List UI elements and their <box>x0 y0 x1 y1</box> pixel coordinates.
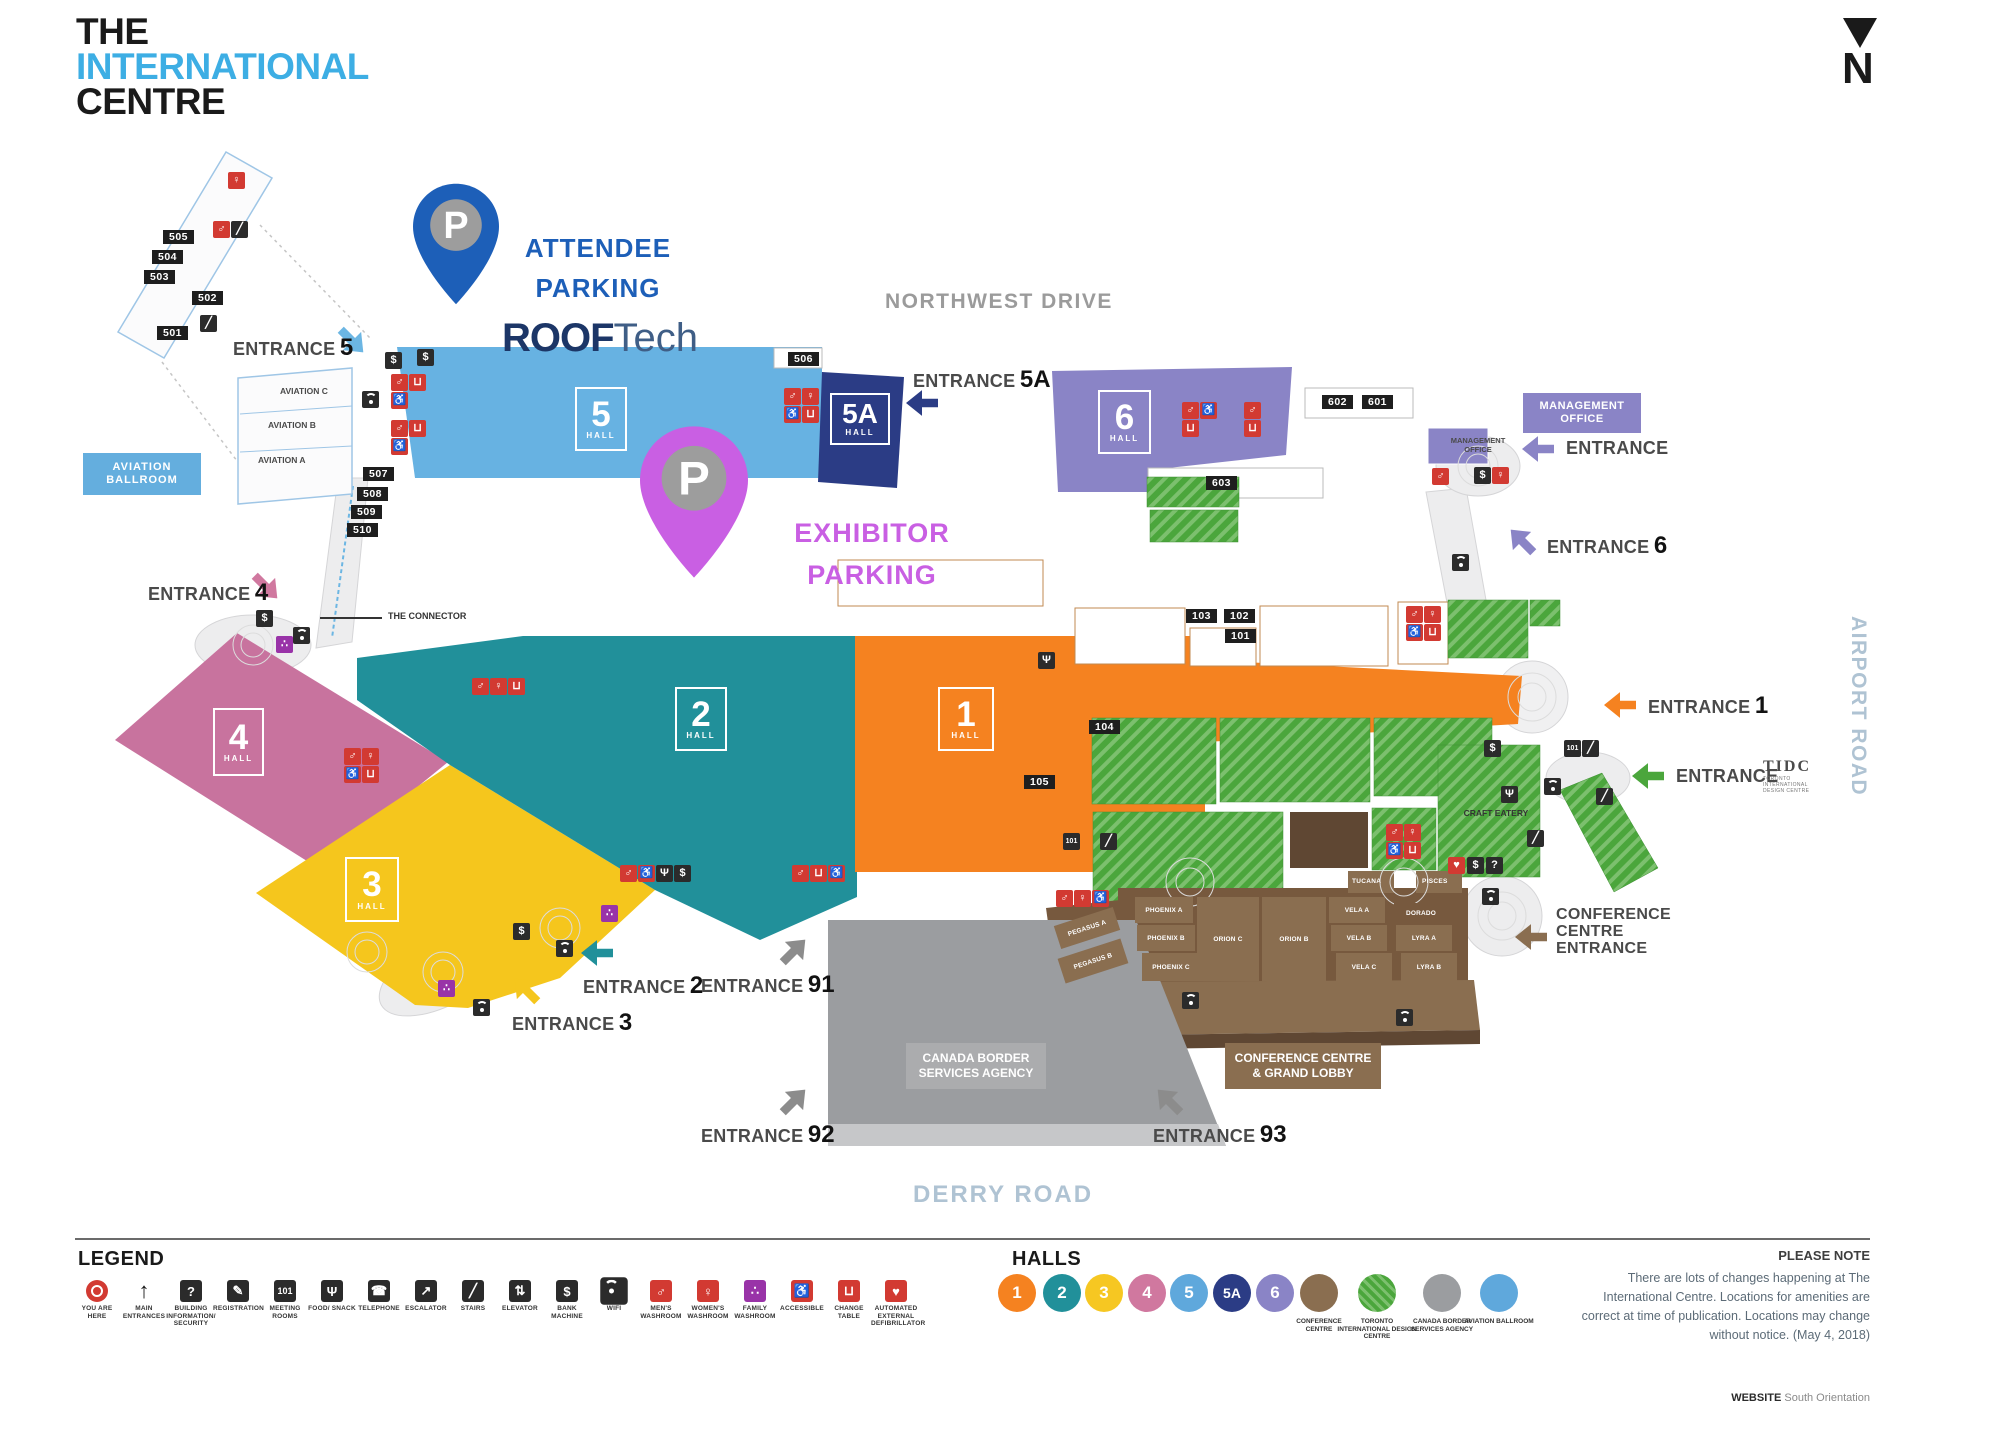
hall-3-swatch: 3 <box>1085 1274 1123 1312</box>
footer-divider <box>75 1238 1870 1240</box>
womens-washroom-icon: ♀ <box>1404 824 1421 841</box>
attendee-word: ATTENDEE <box>518 228 678 268</box>
legend-item: ♥AUTOMATED EXTERNAL DEFIBRILLATOR <box>871 1280 921 1328</box>
defibrillator-icon: ♥ <box>1448 857 1465 874</box>
aviation-b-label: AVIATION B <box>268 420 316 430</box>
womens-washroom-icon: ♀ <box>802 388 819 405</box>
hall-3-label: 3HALL <box>345 857 399 922</box>
legend-item: ♀WOMEN'S WASHROOM <box>683 1280 733 1320</box>
bank-machine-icon: $ <box>1467 857 1484 874</box>
aviation-a-label: AVIATION A <box>258 455 306 465</box>
room-503: 503 <box>144 270 175 284</box>
room-509: 509 <box>351 505 382 519</box>
stairs-icon: ╱ <box>1527 830 1544 847</box>
logo-line-centre: CENTRE <box>76 84 369 119</box>
management-entrance-label: ENTRANCE <box>1566 438 1668 459</box>
womens-washroom-icon: ♀ <box>362 748 379 765</box>
conference-centre-swatch <box>1300 1274 1338 1312</box>
change-table-icon: ⊔ <box>1424 624 1441 641</box>
aviation-ballroom-label: AVIATIONBALLROOM <box>83 453 201 495</box>
venue-logo: THE INTERNATIONAL CENTRE <box>76 14 369 119</box>
exhibitor-parking-pin: P <box>640 426 748 583</box>
room-504: 504 <box>152 250 183 264</box>
food-snack-icon: Ψ <box>321 1280 343 1302</box>
accessible-icon: ♿ <box>391 438 408 455</box>
hall-4-swatch: 4 <box>1128 1274 1166 1312</box>
meeting-rooms-icon: 101 <box>1063 833 1080 850</box>
hall-5a-swatch: 5A <box>1213 1274 1251 1312</box>
change-table-icon: ⊔ <box>409 374 426 391</box>
wifi-icon <box>1544 778 1561 795</box>
hall-5a-label: 5AHALL <box>830 393 890 445</box>
attendee-parking-word: PARKING <box>518 268 678 308</box>
stairs-icon: ╱ <box>200 315 217 332</box>
bank-machine-icon: $ <box>1474 467 1491 484</box>
hall-2-swatch: 2 <box>1043 1274 1081 1312</box>
room-603: 603 <box>1206 476 1237 490</box>
family-washroom-icon: ∴ <box>438 980 455 997</box>
stairs-icon: ╱ <box>1596 788 1613 805</box>
accessible-icon: ♿ <box>784 406 801 423</box>
logo-line-international: INTERNATIONAL <box>76 49 369 84</box>
cbsa-label: CANADA BORDERSERVICES AGENCY <box>906 1043 1046 1089</box>
room-phoenix-c: PHOENIX C <box>1142 953 1200 981</box>
room-tucana: TUCANA <box>1352 878 1381 885</box>
halls-legend-title: HALLS <box>1012 1248 1081 1271</box>
accessible-icon: ♿ <box>1092 890 1109 907</box>
craft-eatery-label: CRAFT EATERY <box>1446 808 1546 818</box>
entrance-3-label: ENTRANCE 3 <box>512 1009 632 1037</box>
stairs-icon: ╱ <box>231 221 248 238</box>
rooftech-roof: ROOF <box>502 316 614 360</box>
food-icon: Ψ <box>1038 652 1055 669</box>
accessible-icon: ♿ <box>391 392 408 409</box>
entrance-5a-label: ENTRANCE 5A <box>913 366 1051 394</box>
bank-machine-icon: $ <box>674 865 691 882</box>
change-table-icon: ⊔ <box>802 406 819 423</box>
mens-washroom-icon: ♂ <box>1182 402 1199 419</box>
hall-2-label: 2HALL <box>675 687 727 751</box>
entrance-93-label: ENTRANCE 93 <box>1153 1121 1287 1149</box>
mens-washroom-icon: ♂ <box>344 748 361 765</box>
tidc-swatch <box>1358 1274 1396 1312</box>
room-vela-c: VELA C <box>1336 953 1392 981</box>
mens-washroom-icon: ♂ <box>650 1280 672 1302</box>
entrance-1-arrow-icon <box>1604 692 1636 718</box>
cbsa-swatch <box>1423 1274 1461 1312</box>
mens-washroom-icon: ♂ <box>391 374 408 391</box>
room-dorado: DORADO <box>1394 903 1448 923</box>
entrance-6-label: ENTRANCE 6 <box>1547 532 1667 560</box>
please-note-title: PLEASE NOTE <box>1580 1248 1870 1263</box>
main-entrances-icon: ↑ <box>133 1280 155 1302</box>
road-derry-road: DERRY ROAD <box>913 1181 1093 1209</box>
legend-item: ⊔CHANGE TABLE <box>824 1280 874 1320</box>
bank-machine-icon: $ <box>417 349 434 366</box>
room-104: 104 <box>1089 720 1120 734</box>
telephone-icon: ☎ <box>368 1280 390 1302</box>
legend-item: WIFI <box>589 1280 639 1313</box>
wifi-icon <box>556 940 573 957</box>
family-washroom-icon: ∴ <box>601 905 618 922</box>
legend-item: ♂MEN'S WASHROOM <box>636 1280 686 1320</box>
mens-washroom-icon: ♂ <box>391 420 408 437</box>
room-vela-b: VELA B <box>1331 925 1387 951</box>
website-orientation: WEBSITE South Orientation <box>1580 1392 1870 1404</box>
womens-washroom-icon: ♀ <box>1492 467 1509 484</box>
defibrillator-icon: ♥ <box>885 1280 907 1302</box>
mens-washroom-icon: ♂ <box>1432 468 1449 485</box>
connector-label: THE CONNECTOR <box>388 611 466 621</box>
exhibitor-parking-label: EXHIBITOR PARKING <box>772 512 972 596</box>
room-phoenix-b: PHOENIX B <box>1137 925 1195 951</box>
mens-washroom-icon: ♂ <box>1056 890 1073 907</box>
mens-washroom-icon: ♂ <box>213 221 230 238</box>
parking-pin-icon: P <box>640 426 748 578</box>
accessible-icon: ♿ <box>638 865 655 882</box>
womens-washroom-icon: ♀ <box>228 172 245 189</box>
meeting-rooms-icon: 101 <box>274 1280 296 1302</box>
rooftech-tech: Tech <box>614 316 699 360</box>
womens-washroom-icon: ♀ <box>697 1280 719 1302</box>
legend-title: LEGEND <box>78 1248 164 1271</box>
hall-4-label: 4HALL <box>213 708 264 776</box>
room-501: 501 <box>157 326 188 340</box>
wifi-icon <box>293 627 310 644</box>
mens-washroom-icon: ♂ <box>620 865 637 882</box>
bank-machine-icon: $ <box>256 610 273 627</box>
conference-centre-label: CONFERENCE CENTRE& GRAND LOBBY <box>1225 1043 1381 1089</box>
escalator-icon: ↗ <box>415 1280 437 1302</box>
aviation-c-label: AVIATION C <box>280 386 328 396</box>
tidc-logo: TIDC TORONTO INTERNATIONAL DESIGN CENTRE <box>1763 758 1811 794</box>
entrance-91-label: ENTRANCE 91 <box>701 971 835 999</box>
please-note: PLEASE NOTE There are lots of changes ha… <box>1580 1248 1870 1345</box>
accessible-icon: ♿ <box>1406 624 1423 641</box>
exhibitor-parking-word: PARKING <box>772 554 972 596</box>
hall-1-label: 1HALL <box>938 687 994 751</box>
tidc-entrance-arrow-icon <box>1632 763 1664 789</box>
womens-washroom-icon: ♀ <box>490 678 507 695</box>
legend-item: ΨFOOD/ SNACK <box>307 1280 357 1313</box>
change-table-icon: ⊔ <box>1404 842 1421 859</box>
svg-text:P: P <box>443 205 468 247</box>
room-102: 102 <box>1224 609 1255 623</box>
aviation-ballroom-swatch <box>1480 1274 1518 1312</box>
building-information-icon: ? <box>180 1280 202 1302</box>
meeting-rooms-icon: 101 <box>1564 740 1581 757</box>
attendee-parking-pin: P <box>413 183 499 310</box>
entrance-4-label: ENTRANCE 4 <box>148 579 268 607</box>
hall-5-swatch: 5 <box>1170 1274 1208 1312</box>
road-northwest-drive: NORTHWEST DRIVE <box>885 290 1113 314</box>
legend-item: $BANK MACHINE <box>542 1280 592 1320</box>
north-label: N <box>1842 44 1874 94</box>
legend-item: ⇅ELEVATOR <box>495 1280 545 1313</box>
change-table-icon: ⊔ <box>1182 420 1199 437</box>
bank-machine-icon: $ <box>385 352 402 369</box>
change-table-icon: ⊔ <box>838 1280 860 1302</box>
information-icon: ? <box>1486 857 1503 874</box>
room-502: 502 <box>192 291 223 305</box>
room-phoenix-a: PHOENIX A <box>1135 897 1193 923</box>
mens-washroom-icon: ♂ <box>1386 824 1403 841</box>
venue-map-page: THE INTERNATIONAL CENTRE N NORTHWEST DRI… <box>0 0 2000 1429</box>
room-105: 105 <box>1024 775 1055 789</box>
food-icon: Ψ <box>1501 786 1518 803</box>
room-101: 101 <box>1225 629 1256 643</box>
womens-washroom-icon: ♀ <box>1424 606 1441 623</box>
legend-item: ✎REGISTRATION <box>213 1280 263 1313</box>
change-table-icon: ⊔ <box>1244 420 1261 437</box>
wifi-icon <box>362 391 379 408</box>
legend-item: ?BUILDING INFORMATION/ SECURITY <box>166 1280 216 1328</box>
legend-item: YOU ARE HERE <box>72 1280 122 1320</box>
svg-text:P: P <box>678 452 710 505</box>
aviation-ballroom-swatch-label: AVIATION BALLROOM <box>1464 1318 1534 1326</box>
room-pisces: PISCES <box>1422 878 1448 885</box>
room-vela-a: VELA A <box>1329 897 1385 923</box>
wifi-icon <box>1182 992 1199 1009</box>
room-orion-b: ORION B <box>1262 897 1326 981</box>
accessible-icon: ♿ <box>1200 402 1217 419</box>
you-are-here-icon <box>86 1280 108 1302</box>
connector-pointer-line <box>320 617 382 619</box>
family-washroom-icon: ∴ <box>276 636 293 653</box>
accessible-icon: ♿ <box>344 766 361 783</box>
family-washroom-icon: ∴ <box>744 1280 766 1302</box>
mens-washroom-icon: ♂ <box>784 388 801 405</box>
wifi-icon <box>1482 888 1499 905</box>
change-table-icon: ⊔ <box>362 766 379 783</box>
room-510: 510 <box>347 523 378 537</box>
wifi-icon <box>473 999 490 1016</box>
legend-item: 101MEETING ROOMS <box>260 1280 310 1320</box>
room-507: 507 <box>363 467 394 481</box>
room-103: 103 <box>1186 609 1217 623</box>
room-601: 601 <box>1362 395 1393 409</box>
mens-washroom-icon: ♂ <box>1244 402 1261 419</box>
bank-machine-icon: $ <box>1484 740 1501 757</box>
accessible-icon: ♿ <box>791 1280 813 1302</box>
hall-6-label: 6HALL <box>1098 390 1151 454</box>
room-orion-c: ORION C <box>1197 897 1259 981</box>
elevator-icon: ⇅ <box>509 1280 531 1302</box>
stairs-icon: ╱ <box>1100 833 1117 850</box>
change-table-icon: ⊔ <box>409 420 426 437</box>
attendee-parking-label: ATTENDEE PARKING <box>518 228 678 308</box>
accessible-icon: ♿ <box>1386 842 1403 859</box>
legend-item: ♿ACCESSIBLE <box>777 1280 827 1313</box>
legend-item: ∴FAMILY WASHROOM <box>730 1280 780 1320</box>
room-505: 505 <box>163 230 194 244</box>
change-table-icon: ⊔ <box>508 678 525 695</box>
room-lyra-b: LYRA B <box>1401 953 1457 981</box>
please-note-body: There are lots of changes happening at T… <box>1580 1269 1870 1345</box>
legend-item: ↗ESCALATOR <box>401 1280 451 1313</box>
stairs-icon: ╱ <box>462 1280 484 1302</box>
conference-entrance-label: CONFERENCE CENTRE ENTRANCE <box>1556 906 1671 957</box>
hall-1-swatch: 1 <box>998 1274 1036 1312</box>
logo-line-the: THE <box>76 14 369 49</box>
room-508: 508 <box>357 487 388 501</box>
road-airport-road: AIRPORT ROAD <box>1846 616 1870 796</box>
entrance-5-label: ENTRANCE 5 <box>233 334 353 362</box>
room-506: 506 <box>788 352 819 366</box>
conference-entrance-arrow-icon <box>1515 924 1547 950</box>
legend-item: ↑MAIN ENTRANCES <box>119 1280 169 1320</box>
room-602: 602 <box>1322 395 1353 409</box>
management-office-legend-label: MANAGEMENTOFFICE <box>1523 393 1641 433</box>
rooftech-logo: ROOFTech <box>502 316 698 361</box>
entrance-92-label: ENTRANCE 92 <box>701 1121 835 1149</box>
management-entrance-arrow-icon <box>1522 436 1554 462</box>
wifi-icon <box>1452 554 1469 571</box>
room-lyra-a: LYRA A <box>1396 925 1452 951</box>
entrance-1-label: ENTRANCE 1 <box>1648 692 1768 720</box>
mens-washroom-icon: ♂ <box>792 865 809 882</box>
bank-machine-icon: $ <box>556 1280 578 1302</box>
mens-washroom-icon: ♂ <box>1406 606 1423 623</box>
parking-pin-icon: P <box>413 183 499 305</box>
exhibitor-word: EXHIBITOR <box>772 512 972 554</box>
management-office-map-label: MANAGEMENT OFFICE <box>1440 437 1516 454</box>
hall-6-swatch: 6 <box>1256 1274 1294 1312</box>
womens-washroom-icon: ♀ <box>1074 890 1091 907</box>
registration-icon: ✎ <box>227 1280 249 1302</box>
wifi-icon <box>600 1277 628 1305</box>
change-table-icon: ⊔ <box>810 865 827 882</box>
stairs-icon: ╱ <box>1582 740 1599 757</box>
entrance-2-label: ENTRANCE 2 <box>583 972 703 1000</box>
wifi-icon <box>1396 1009 1413 1026</box>
food-icon: Ψ <box>656 865 673 882</box>
legend-item: ☎TELEPHONE <box>354 1280 404 1313</box>
entrance-2-arrow-icon <box>581 940 613 966</box>
legend-item: ╱STAIRS <box>448 1280 498 1313</box>
hall-5-label: 5HALL <box>575 387 627 451</box>
bank-machine-icon: $ <box>513 923 530 940</box>
accessible-icon: ♿ <box>828 865 845 882</box>
mens-washroom-icon: ♂ <box>472 678 489 695</box>
